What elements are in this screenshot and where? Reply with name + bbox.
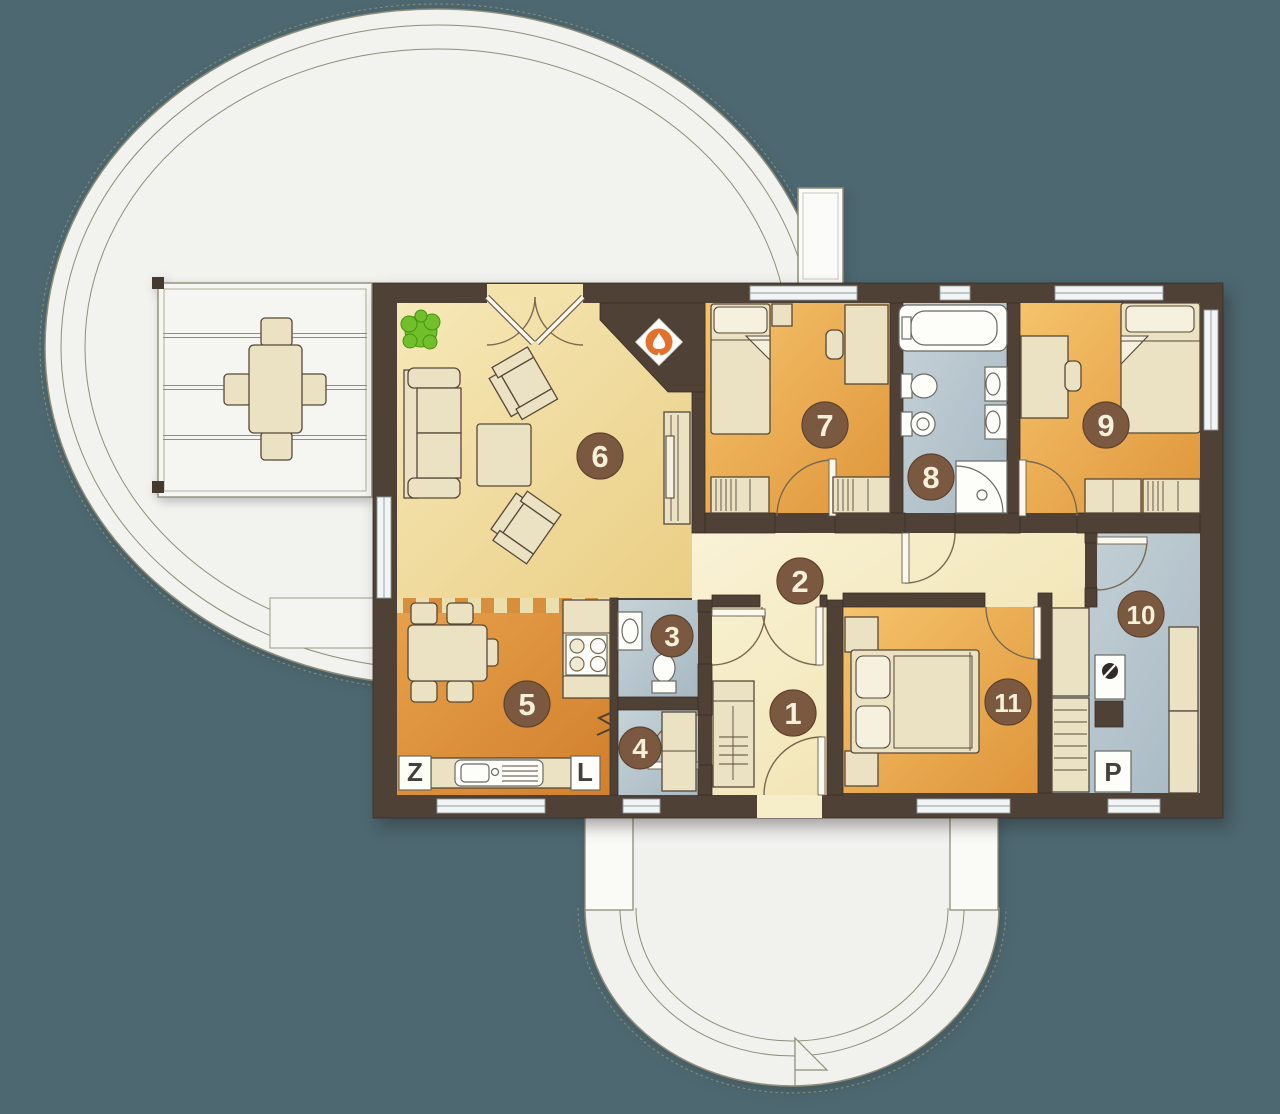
wall-corridor-bed11 [843,593,985,607]
washing-machine-label: P [1104,757,1121,787]
wall-corridor-north-c [955,513,1020,533]
utility-counter-block [1095,701,1123,727]
door-leaf-bath8 [902,533,909,583]
outdoor-chair [299,374,326,405]
burner [570,639,584,653]
deck-post-top [152,277,164,289]
nightstand [845,751,878,786]
hall-wardrobe [713,681,754,787]
desk [1021,336,1068,418]
porch-floor [633,815,950,910]
outdoor-chair [261,432,292,460]
kitchen-east-counter [563,600,610,698]
wall-bath8-bed9 [1007,303,1020,533]
dining-chair [411,603,437,624]
badge-room-11-number: 11 [994,688,1022,718]
outdoor-table [249,345,302,433]
sofa-cushion [417,433,461,478]
pillow [856,656,890,698]
pantry-cabinet [662,712,696,791]
wall-wc-pantry [618,697,698,710]
single-bed [711,304,770,434]
dining-chair [411,681,437,702]
floor-plan-canvas: P [0,0,1280,1114]
door-leaf-bed9 [1019,460,1026,516]
wall-pantry-hall [698,765,712,795]
desk-chair [826,330,843,359]
terrace-apron [270,598,374,648]
outdoor-chair [224,374,251,405]
pillow [714,307,767,333]
toilet [652,654,676,693]
pillow [856,706,890,748]
wall-corridor-north-a [705,513,775,533]
tv-cabinet [664,412,690,524]
shelf-cabinet [1052,698,1089,792]
door-leaf-bed11 [1034,607,1041,659]
porch-right-pier [950,812,998,910]
floor-plan-svg: P [0,0,1280,1114]
plant-icon [401,310,440,349]
fridge: L [571,756,600,790]
wall-wc-hall-a [698,600,712,612]
kitchen-sink [455,760,543,786]
washing-machine: P [1095,751,1131,792]
dining-chair [447,603,473,624]
tv-set [666,436,674,498]
sofa-armrest [408,368,460,388]
burner [570,657,584,671]
washbasin [985,367,1007,401]
badge-room-3-number: 3 [664,621,680,652]
low-cabinet [1085,479,1141,513]
entry-porch [578,812,1006,1093]
badge-room-9-number: 9 [1097,408,1114,443]
toilet [901,374,937,398]
badge-room-7-number: 7 [816,408,833,443]
bookshelf [711,477,769,513]
bookshelf [833,477,890,513]
tall-cabinet [1169,711,1198,793]
sofa-armrest [408,478,460,498]
tall-cabinet [1052,608,1089,696]
sofa [404,368,461,498]
badge-room-8-number: 8 [922,460,939,495]
wall-corridor-north-b [835,513,905,533]
pillow [1126,306,1194,332]
badge-room-4-number: 4 [632,733,648,764]
door-leaf-wc [712,609,765,616]
burner [591,657,606,672]
wall-utility-jamb-top [1085,533,1097,543]
burner [591,639,606,654]
bidet [901,412,935,436]
deck-post-bottom [152,481,164,493]
nightstand [772,304,792,326]
dining-chair [447,681,473,702]
porch-left-pier [585,812,633,910]
desk [845,305,888,384]
building: P [373,283,1223,818]
deck [152,277,372,497]
fridge-label: L [577,757,593,787]
kitchen-bottom-counter: Z L [399,756,600,790]
sink-bowl [461,764,489,782]
wall-kitchen-wc [610,598,618,795]
badge-room-6-number: 6 [591,439,608,474]
entrance-threshold [757,795,822,818]
single-bed [1121,303,1200,433]
tall-cabinet [1169,627,1198,711]
wall-wc-hall-b [698,664,712,715]
coffee-table [477,424,531,486]
badge-room-10-number: 10 [1127,600,1156,630]
dining-table [408,625,487,681]
chimney-pillar [798,188,843,284]
dishwasher: Z [399,756,431,790]
bookshelf [1143,479,1200,513]
sofa-cushion [417,388,461,433]
corner-shower [956,461,1007,513]
door-leaf-entrance [818,737,825,795]
faucet [492,769,499,776]
wall-hall-corridor-a [712,595,760,607]
door-leaf-hall [816,607,823,665]
cooktop [566,635,607,675]
boiler-icon [1095,655,1125,699]
badge-room-2-number: 2 [791,564,808,599]
nightstand [845,617,878,652]
washbasin [618,612,642,650]
door-leaf-utility [1097,537,1147,544]
wall-hall-corridor-b [820,595,827,607]
wall-corridor-north-d [1077,513,1200,533]
badge-room-5-number: 5 [518,687,535,722]
bathtub [899,305,1007,351]
outdoor-chair [261,318,292,346]
desk-chair [1065,361,1081,391]
double-bed [851,650,979,753]
wall-hall-bed11 [827,600,843,795]
dishwasher-label: Z [407,757,423,787]
badge-room-1-number: 1 [784,696,801,731]
porch-semicircle [585,908,999,1086]
washbasin [985,405,1007,439]
wall-utility-jamb-bottom [1085,588,1097,607]
